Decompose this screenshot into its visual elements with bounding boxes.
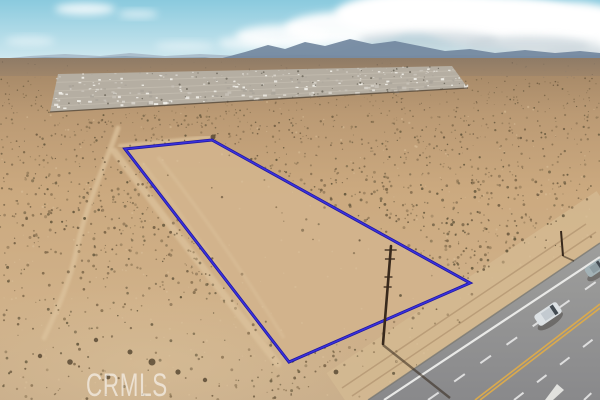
tree-dot (406, 66, 408, 68)
rooftop (118, 87, 121, 89)
rooftop (212, 99, 215, 101)
rooftop (283, 74, 285, 75)
rooftop (255, 71, 257, 72)
rooftop (200, 96, 202, 97)
rooftop (372, 70, 373, 71)
rooftop (160, 75, 162, 76)
tree-dot (394, 76, 395, 77)
rooftop (114, 73, 116, 74)
rooftop (330, 71, 332, 73)
rooftop (95, 99, 98, 101)
rooftop (82, 73, 84, 74)
rooftop (298, 82, 301, 84)
rooftop (113, 93, 116, 95)
rooftop (213, 77, 216, 79)
rooftop (263, 95, 267, 97)
rooftop (357, 68, 359, 69)
rooftop (235, 86, 238, 88)
rooftop (207, 81, 208, 82)
tree-dot (370, 77, 372, 79)
rooftop (397, 86, 402, 88)
rooftop (188, 92, 192, 94)
rooftop (443, 77, 445, 78)
rooftop (70, 89, 72, 90)
tree-dot (297, 79, 298, 80)
rooftop (170, 78, 173, 80)
rooftop (400, 76, 401, 77)
rooftop (214, 95, 216, 96)
rooftop (129, 93, 131, 94)
tree-dot (312, 82, 313, 83)
rooftop (402, 74, 404, 76)
rooftop (449, 72, 450, 73)
rooftop (451, 85, 453, 86)
rooftop (100, 89, 102, 90)
rooftop (326, 69, 327, 70)
tree-dot (361, 70, 362, 71)
rooftop (414, 74, 417, 76)
rooftop (212, 96, 214, 97)
tree-dot (205, 96, 206, 97)
tree-dot (185, 96, 186, 97)
rooftop (296, 95, 298, 96)
rooftop (59, 76, 61, 78)
tree-dot (297, 93, 299, 95)
rooftop (384, 74, 386, 75)
rooftop (139, 72, 141, 73)
tree-dot (314, 94, 315, 95)
tree-dot (152, 73, 153, 74)
tree-dot (216, 80, 217, 81)
rooftop (180, 91, 182, 92)
rooftop (69, 85, 72, 87)
rooftop (386, 68, 387, 69)
tree-dot (73, 85, 74, 86)
tree-dot (363, 83, 364, 84)
tree-dot (160, 99, 162, 101)
rooftop (284, 70, 285, 71)
rooftop (322, 82, 324, 83)
rooftop (265, 75, 267, 76)
rooftop (93, 85, 96, 86)
tree-dot (391, 71, 392, 72)
tree-dot (411, 81, 412, 82)
rooftop (81, 90, 84, 92)
rooftop (385, 84, 388, 85)
desert-bush (128, 350, 133, 355)
rooftop (96, 89, 99, 91)
rooftop (242, 95, 245, 97)
rooftop (238, 84, 240, 85)
rooftop (104, 100, 107, 102)
rooftop (305, 77, 307, 78)
rooftop (383, 72, 384, 73)
rooftop (297, 87, 299, 88)
desert-bush (149, 359, 156, 366)
rooftop (225, 82, 227, 83)
rooftop (359, 74, 361, 75)
rooftop (93, 82, 95, 83)
rooftop (55, 98, 57, 99)
tree-dot (186, 88, 188, 90)
tree-dot (315, 85, 317, 87)
rooftop (272, 77, 273, 78)
rooftop (223, 98, 225, 99)
rooftop (204, 99, 207, 101)
desert-bush (203, 378, 207, 382)
rooftop (419, 76, 420, 77)
rooftop (401, 75, 402, 76)
rooftop (253, 89, 254, 90)
rooftop (455, 78, 456, 79)
rooftop (191, 76, 194, 77)
rooftop (391, 72, 392, 73)
rooftop (118, 96, 121, 98)
tree-dot (423, 79, 425, 81)
rooftop (59, 93, 62, 94)
rooftop (103, 88, 106, 89)
desert-bush (334, 370, 339, 375)
tree-dot (142, 98, 143, 99)
rooftop (125, 85, 127, 86)
rooftop (371, 85, 375, 87)
rooftop (99, 83, 100, 84)
rooftop (63, 108, 66, 110)
rooftop (138, 93, 141, 95)
rooftop (329, 92, 332, 94)
rooftop (398, 89, 400, 90)
rooftop (317, 80, 319, 81)
rooftop (290, 78, 293, 80)
rooftop (117, 100, 119, 101)
rooftop (57, 106, 60, 108)
rooftop (221, 75, 222, 76)
rooftop (433, 71, 435, 72)
desert-bush (38, 354, 42, 358)
rooftop (121, 82, 123, 83)
tree-dot (263, 71, 265, 73)
tree-dot (396, 68, 397, 69)
rooftop (163, 77, 165, 78)
rooftop (283, 94, 286, 96)
rooftop (203, 84, 205, 86)
rooftop (337, 69, 339, 70)
rooftop (176, 75, 178, 76)
tree-dot (221, 96, 222, 97)
rooftop (453, 80, 455, 81)
rooftop (146, 93, 149, 95)
rooftop (252, 92, 255, 94)
rooftop (120, 78, 123, 80)
rooftop (149, 95, 152, 97)
tree-dot (459, 83, 460, 84)
rooftop (109, 79, 110, 80)
rooftop (430, 80, 434, 82)
rooftop (345, 90, 348, 92)
rooftop (166, 102, 168, 103)
rooftop (171, 86, 174, 88)
tree-dot (261, 73, 262, 74)
rooftop (249, 90, 253, 92)
tree-dot (107, 103, 109, 105)
desert-bush (106, 375, 111, 380)
tree-dot (357, 83, 358, 84)
rooftop (373, 77, 375, 78)
rooftop (122, 101, 125, 103)
tree-dot (68, 102, 70, 104)
rooftop (214, 91, 217, 93)
rooftop (401, 77, 402, 78)
rooftop (91, 74, 92, 75)
tree-dot (438, 68, 439, 69)
cloud (5, 36, 55, 46)
tree-dot (321, 90, 323, 92)
rooftop (78, 103, 80, 104)
rooftop (271, 92, 275, 95)
tree-dot (317, 93, 318, 94)
tree-dot (409, 71, 411, 73)
rooftop (364, 87, 368, 89)
rooftop (425, 83, 427, 84)
rooftop (225, 93, 229, 96)
rooftop (89, 89, 91, 90)
rooftop (346, 72, 348, 73)
rooftop (158, 79, 160, 80)
rooftop (433, 72, 434, 73)
rooftop (432, 75, 434, 76)
rooftop (203, 101, 205, 102)
rooftop (196, 96, 199, 98)
tree-dot (376, 83, 378, 85)
tree-dot (393, 70, 395, 72)
rooftop (426, 71, 428, 72)
photo-scene (0, 0, 600, 400)
rooftop (249, 96, 252, 98)
rooftop (243, 87, 246, 89)
rooftop (357, 73, 358, 74)
rooftop (247, 73, 249, 74)
rooftop (54, 104, 58, 106)
rooftop (327, 78, 330, 80)
rooftop (304, 88, 308, 90)
rooftop (278, 70, 280, 71)
tree-dot (197, 72, 198, 73)
desert-bush (67, 359, 73, 365)
desert-bush (175, 369, 180, 374)
rooftop (274, 80, 277, 82)
rooftop (149, 101, 153, 104)
tree-dot (216, 72, 218, 74)
tree-dot (429, 66, 431, 68)
rooftop (427, 85, 429, 86)
rooftop (237, 83, 238, 84)
tree-dot (352, 76, 353, 77)
rooftop (427, 69, 430, 70)
tree-dot (261, 84, 263, 86)
rooftop (121, 104, 124, 106)
rooftop (402, 87, 406, 90)
cloud (118, 10, 158, 18)
rooftop (156, 97, 158, 98)
tree-dot (359, 82, 361, 84)
rooftop (309, 92, 313, 95)
rooftop (245, 89, 247, 90)
rooftop (402, 67, 403, 68)
rooftop (214, 80, 215, 81)
rooftop (458, 77, 460, 78)
rooftop (140, 90, 144, 92)
rooftop (395, 72, 398, 73)
rooftop (154, 103, 158, 105)
tree-dot (275, 85, 276, 86)
rooftop (79, 82, 82, 83)
rooftop (112, 96, 116, 99)
tree-dot (297, 70, 299, 72)
tree-dot (444, 83, 446, 85)
rooftop (281, 79, 282, 80)
tree-dot (196, 76, 197, 77)
aerial-photo: CRMLS (0, 0, 600, 400)
rooftop (136, 97, 138, 98)
rooftop (336, 80, 339, 82)
rooftop (306, 86, 308, 87)
rooftop (399, 76, 400, 77)
rooftop (233, 86, 236, 88)
rooftop (338, 83, 340, 84)
tree-dot (179, 83, 181, 85)
rooftop (233, 81, 235, 83)
tree-dot (208, 82, 210, 84)
rooftop (250, 85, 252, 86)
rooftop (227, 87, 230, 89)
rooftop (406, 82, 409, 84)
rooftop (421, 70, 424, 71)
rooftop (105, 101, 107, 102)
tree-dot (104, 94, 106, 96)
tree-dot (379, 84, 380, 85)
rooftop (310, 81, 311, 82)
rooftop (203, 77, 206, 78)
rooftop (339, 90, 341, 91)
rooftop (424, 86, 427, 88)
tree-dot (302, 75, 304, 77)
rooftop (242, 73, 244, 74)
tree-dot (386, 89, 388, 91)
rooftop (56, 78, 59, 79)
rooftop (65, 94, 68, 96)
rooftop (360, 78, 361, 79)
rooftop (142, 85, 144, 86)
rooftop (448, 70, 450, 71)
rooftop (111, 91, 114, 93)
rooftop (180, 89, 182, 90)
rooftop (131, 102, 135, 105)
rooftop (82, 77, 85, 79)
rooftop (372, 89, 375, 91)
rooftop (241, 89, 244, 91)
rooftop (146, 73, 148, 74)
rooftop (368, 87, 371, 88)
rooftop (426, 81, 428, 82)
rooftop (389, 88, 391, 89)
rooftop (343, 69, 345, 70)
rooftop (179, 87, 181, 88)
rooftop (56, 100, 59, 102)
rooftop (425, 73, 427, 74)
tree-dot (226, 78, 228, 80)
rooftop (273, 75, 276, 77)
rooftop (165, 74, 167, 75)
desert-bush (94, 338, 98, 342)
tree-dot (332, 88, 333, 89)
rooftop (359, 80, 361, 81)
rooftop (272, 89, 275, 91)
rooftop (288, 73, 290, 74)
rooftop (84, 84, 86, 85)
rooftop (115, 82, 117, 83)
rooftop (365, 75, 367, 76)
rooftop (441, 78, 444, 80)
rooftop (427, 72, 429, 73)
rooftop (379, 78, 382, 80)
rooftop (205, 91, 206, 92)
rooftop (357, 75, 359, 76)
rooftop (292, 81, 293, 82)
tree-dot (424, 76, 425, 77)
rooftop (325, 92, 327, 93)
rooftop (406, 79, 408, 80)
rooftop (388, 82, 392, 84)
rooftop (77, 100, 81, 102)
rooftop (88, 101, 92, 103)
rooftop (375, 85, 379, 88)
rooftop (436, 71, 438, 72)
rooftop (192, 72, 194, 73)
rooftop (92, 95, 94, 96)
cloud (55, 3, 115, 15)
rooftop (298, 74, 300, 75)
rooftop (378, 71, 380, 73)
rooftop (341, 80, 343, 81)
rooftop (95, 91, 97, 92)
rooftop (243, 75, 244, 76)
rooftop (414, 78, 417, 80)
cloud (155, 41, 215, 51)
rooftop (416, 82, 418, 83)
rooftop (98, 79, 101, 81)
